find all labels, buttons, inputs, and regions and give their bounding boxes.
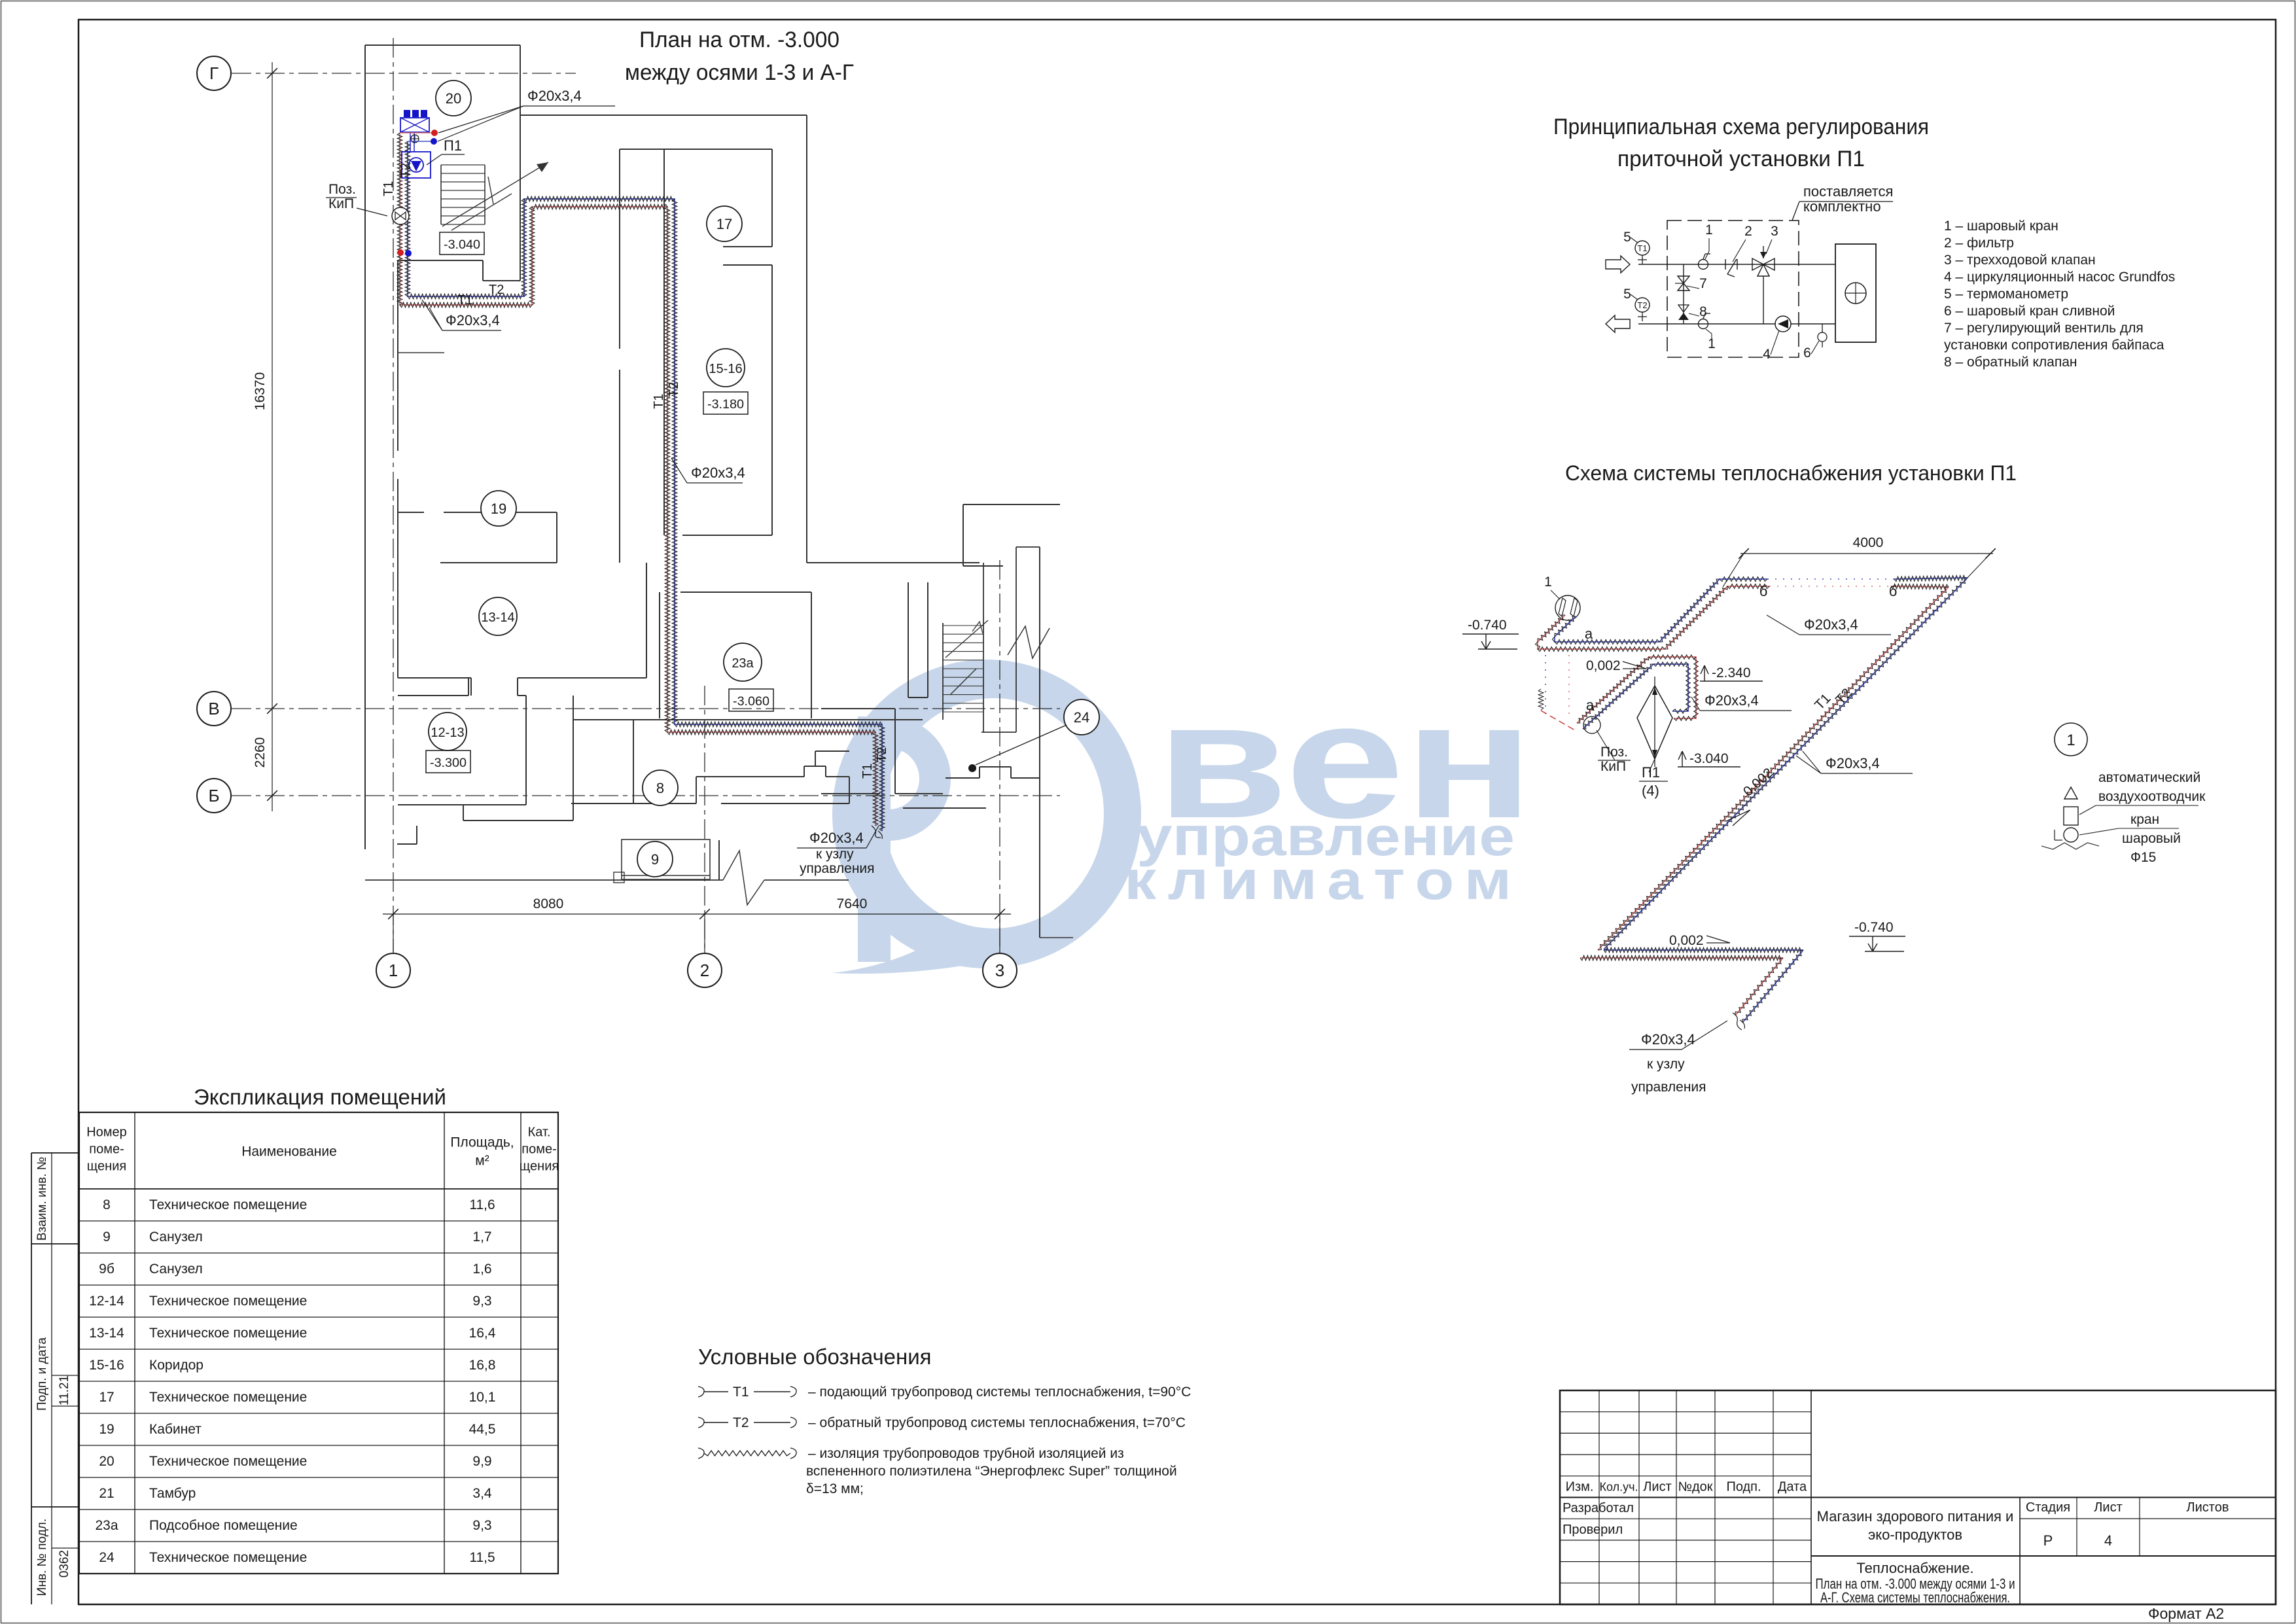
svg-text:-3.300: -3.300 (430, 756, 467, 770)
svg-text:Ф20x3,4: Ф20x3,4 (1804, 616, 1858, 633)
svg-text:Т1: Т1 (860, 764, 875, 779)
svg-text:-2.340: -2.340 (1712, 665, 1751, 680)
svg-text:Подсобное помещение: Подсобное помещение (149, 1518, 298, 1533)
svg-text:шаровый: шаровый (2122, 831, 2181, 846)
svg-text:44,5: 44,5 (469, 1422, 496, 1437)
svg-text:11.21: 11.21 (58, 1375, 71, 1405)
svg-text:В: В (208, 699, 219, 718)
svg-text:Р: Р (2043, 1532, 2053, 1549)
svg-text:Г: Г (209, 63, 219, 83)
svg-text:поставляется: поставляется (1803, 183, 1893, 200)
svg-text:0,002: 0,002 (1669, 933, 1704, 948)
svg-text:17: 17 (716, 216, 732, 232)
svg-text:23а: 23а (732, 656, 754, 671)
svg-text:вспененного полиэтилена “Энерг: вспененного полиэтилена “Энергофлекс Sup… (806, 1464, 1177, 1479)
svg-text:9,3: 9,3 (472, 1518, 491, 1533)
svg-text:Номер: Номер (86, 1125, 127, 1140)
svg-text:Санузел: Санузел (149, 1229, 203, 1244)
svg-text:Дата: Дата (1778, 1480, 1807, 1494)
svg-text:к узлу: к узлу (816, 847, 854, 862)
svg-text:9: 9 (103, 1229, 111, 1244)
svg-text:10,1: 10,1 (469, 1390, 496, 1405)
svg-text:приточной установки П1: приточной установки П1 (1617, 147, 1865, 171)
svg-text:19: 19 (491, 501, 506, 517)
svg-text:1 – шаровый кран: 1 – шаровый кран (1944, 219, 2058, 234)
svg-text:Формат А2: Формат А2 (2148, 1605, 2224, 1622)
svg-text:3: 3 (995, 961, 1004, 980)
svg-text:Техническое помещение: Техническое помещение (149, 1326, 307, 1341)
svg-text:9,9: 9,9 (472, 1454, 491, 1469)
svg-text:4: 4 (1763, 347, 1771, 362)
svg-text:Т2: Т2 (667, 382, 681, 397)
svg-text:б: б (1889, 583, 1898, 599)
svg-text:Б: Б (208, 786, 219, 805)
svg-text:3,4: 3,4 (472, 1486, 492, 1501)
svg-text:КиП: КиП (1600, 759, 1626, 774)
svg-text:Коридор: Коридор (149, 1358, 203, 1373)
svg-text:15-16: 15-16 (89, 1358, 124, 1373)
svg-text:-0.740: -0.740 (1468, 618, 1507, 633)
svg-text:а: а (1585, 626, 1593, 642)
svg-text:3 – трехходовой клапан: 3 – трехходовой клапан (1944, 253, 2096, 268)
svg-text:1,6: 1,6 (472, 1262, 491, 1277)
svg-text:2 – фильтр: 2 – фильтр (1944, 236, 2014, 251)
svg-text:Схема системы теплоснабжения у: Схема системы теплоснабжения установки П… (1565, 461, 2017, 485)
svg-text:Т1: Т1 (733, 1385, 749, 1400)
svg-text:4000: 4000 (1853, 535, 1884, 550)
svg-text:Теплоснабжение.: Теплоснабжение. (1856, 1560, 1973, 1576)
svg-text:16,8: 16,8 (469, 1358, 496, 1373)
svg-text:Проверил: Проверил (1563, 1523, 1623, 1537)
svg-text:Техническое помещение: Техническое помещение (149, 1454, 307, 1469)
svg-text:1: 1 (389, 961, 398, 980)
svg-text:Наименование: Наименование (241, 1144, 337, 1159)
svg-text:Т1: Т1 (381, 181, 396, 196)
svg-text:7: 7 (1699, 276, 1707, 291)
svg-text:9,3: 9,3 (472, 1294, 491, 1309)
svg-text:Санузел: Санузел (149, 1262, 203, 1277)
svg-text:1,7: 1,7 (472, 1229, 491, 1244)
svg-text:-3.040: -3.040 (444, 238, 480, 252)
svg-text:-3.180: -3.180 (707, 398, 744, 412)
svg-text:17: 17 (99, 1390, 114, 1405)
svg-text:24: 24 (99, 1550, 115, 1565)
svg-text:13-14: 13-14 (89, 1326, 124, 1341)
svg-text:управления: управления (800, 861, 875, 876)
svg-text:Поз.: Поз. (1600, 745, 1628, 760)
svg-text:Площадь,: Площадь, (450, 1135, 514, 1150)
svg-text:Кат.: Кат. (528, 1125, 551, 1140)
svg-text:8: 8 (656, 780, 664, 796)
svg-text:Лист: Лист (1643, 1480, 1671, 1494)
svg-text:Т2: Т2 (489, 283, 504, 297)
svg-text:поме-: поме- (521, 1142, 557, 1157)
svg-text:Ф20x3,4: Ф20x3,4 (691, 465, 745, 481)
svg-text:№док: №док (1678, 1480, 1713, 1494)
svg-text:3: 3 (1771, 224, 1778, 239)
svg-text:Изм.: Изм. (1566, 1480, 1594, 1494)
svg-text:А-Г. Схема системы теплоснабже: А-Г. Схема системы теплоснабжения. (1820, 1589, 2010, 1606)
svg-text:20: 20 (446, 90, 461, 107)
svg-text:П1: П1 (444, 137, 462, 154)
svg-text:23а: 23а (95, 1518, 118, 1533)
svg-text:16,4: 16,4 (469, 1326, 496, 1341)
svg-text:2260: 2260 (253, 737, 268, 768)
svg-text:Ф20x3,4: Ф20x3,4 (446, 312, 500, 328)
svg-text:Принципиальная схема регулиров: Принципиальная схема регулирования (1553, 115, 1929, 139)
svg-text:4: 4 (2104, 1532, 2112, 1549)
svg-text:Ф20x3,4: Ф20x3,4 (1826, 755, 1880, 771)
svg-text:Тамбур: Тамбур (149, 1486, 196, 1501)
svg-text:19: 19 (99, 1422, 114, 1437)
svg-text:Техническое помещение: Техническое помещение (149, 1550, 307, 1565)
svg-text:8: 8 (103, 1197, 111, 1212)
svg-text:0362: 0362 (58, 1550, 71, 1578)
svg-text:Ф20x3,4: Ф20x3,4 (1641, 1031, 1695, 1048)
svg-text:5: 5 (1623, 230, 1631, 245)
svg-text:Условные обозначения: Условные обозначения (698, 1345, 932, 1369)
svg-text:Ф20x3,4: Ф20x3,4 (809, 830, 864, 846)
svg-text:комплектно: комплектно (1803, 198, 1881, 215)
svg-text:20: 20 (99, 1454, 114, 1469)
svg-text:Ф20x3,4: Ф20x3,4 (1704, 692, 1759, 709)
svg-text:между осями 1-3 и А-Г: между осями 1-3 и А-Г (625, 60, 854, 85)
svg-text:11,5: 11,5 (469, 1550, 495, 1565)
svg-text:Кабинет: Кабинет (149, 1422, 202, 1437)
svg-text:13-14: 13-14 (481, 610, 514, 625)
svg-text:Техническое помещение: Техническое помещение (149, 1294, 307, 1309)
svg-text:24: 24 (1074, 709, 1089, 726)
svg-text:Т1: Т1 (652, 394, 666, 409)
svg-text:Техническое помещение: Техническое помещение (149, 1390, 307, 1405)
svg-text:поме-: поме- (89, 1142, 124, 1157)
svg-text:Ф15: Ф15 (2130, 850, 2156, 865)
svg-text:Магазин здорового питания и: Магазин здорового питания и (1817, 1508, 2014, 1525)
svg-text:– обратный трубопровод системы: – обратный трубопровод системы теплоснаб… (808, 1415, 1186, 1430)
svg-text:автоматический: автоматический (2098, 770, 2200, 785)
svg-text:Подп.: Подп. (1726, 1480, 1761, 1494)
svg-text:8080: 8080 (533, 896, 564, 911)
svg-text:8: 8 (1699, 304, 1707, 319)
svg-text:1: 1 (2066, 732, 2075, 749)
svg-text:Разработал: Разработал (1563, 1501, 1634, 1515)
svg-text:7640: 7640 (837, 896, 868, 911)
svg-text:16370: 16370 (253, 372, 268, 410)
svg-text:Лист: Лист (2094, 1500, 2122, 1515)
svg-text:климатом: климатом (1124, 850, 1523, 911)
svg-text:Поз.: Поз. (328, 182, 356, 197)
svg-text:21: 21 (99, 1486, 114, 1501)
svg-text:Т2: Т2 (1637, 300, 1647, 310)
svg-text:– изоляция трубопроводов трубн: – изоляция трубопроводов трубной изоляци… (808, 1446, 1124, 1461)
svg-text:управления: управления (1631, 1080, 1706, 1095)
svg-text:установки сопротивления байпас: установки сопротивления байпаса (1944, 338, 2164, 353)
svg-text:4 – циркуляционный насос Grund: 4 – циркуляционный насос Grundfos (1944, 270, 2175, 285)
svg-text:воздухоотводчик: воздухоотводчик (2098, 789, 2206, 804)
svg-text:8 – обратный клапан: 8 – обратный клапан (1944, 355, 2077, 370)
svg-text:-0.740: -0.740 (1854, 920, 1894, 935)
svg-text:7 – регулирующий вентиль для: 7 – регулирующий вентиль для (1944, 321, 2144, 336)
svg-text:6: 6 (1803, 345, 1811, 361)
svg-text:0,002: 0,002 (1586, 658, 1621, 673)
svg-text:Ф20x3,4: Ф20x3,4 (527, 88, 582, 104)
svg-text:9б: 9б (99, 1262, 115, 1277)
svg-text:2: 2 (1744, 224, 1752, 239)
svg-text:1: 1 (1705, 222, 1713, 238)
svg-text:Взаим. инв. №: Взаим. инв. № (35, 1157, 49, 1241)
svg-text:Листов: Листов (2187, 1500, 2229, 1515)
svg-text:эко-продуктов: эко-продуктов (1868, 1527, 1962, 1543)
svg-text:-3.040: -3.040 (1689, 751, 1729, 766)
svg-text:9: 9 (651, 851, 659, 868)
svg-text:5 – термоманометр: 5 – термоманометр (1944, 287, 2068, 302)
svg-text:П1: П1 (1642, 764, 1660, 781)
svg-text:15-16: 15-16 (709, 362, 742, 376)
svg-text:(4): (4) (1642, 783, 1659, 799)
svg-text:5: 5 (1623, 287, 1631, 302)
svg-text:щения: щения (520, 1159, 559, 1174)
svg-text:12-13: 12-13 (431, 726, 464, 740)
svg-text:– подающий трубопровод системы: – подающий трубопровод системы теплоснаб… (808, 1385, 1191, 1400)
svg-text:План на отм. -3.000: План на отм. -3.000 (639, 27, 839, 52)
svg-text:Т1: Т1 (1637, 243, 1647, 253)
svg-text:δ=13 мм;: δ=13 мм; (806, 1481, 864, 1496)
svg-text:к узлу: к узлу (1647, 1057, 1685, 1072)
svg-text:11,6: 11,6 (469, 1197, 495, 1212)
svg-text:б: б (1759, 583, 1768, 599)
svg-text:Экспликация помещений: Экспликация помещений (194, 1085, 446, 1109)
svg-text:Т2: Т2 (398, 163, 413, 178)
svg-text:кран: кран (2130, 812, 2159, 827)
svg-text:Инв. № подл.: Инв. № подл. (35, 1519, 49, 1596)
svg-text:Стадия: Стадия (2026, 1500, 2070, 1515)
svg-text:Т1: Т1 (457, 293, 472, 308)
svg-text:щения: щения (87, 1159, 126, 1174)
svg-text:1: 1 (1544, 574, 1552, 590)
svg-text:м²: м² (475, 1154, 489, 1169)
svg-text:-3.060: -3.060 (733, 695, 769, 709)
svg-text:Техническое помещение: Техническое помещение (149, 1197, 307, 1212)
svg-text:Подп. и дата: Подп. и дата (35, 1337, 49, 1411)
svg-text:12-14: 12-14 (89, 1294, 124, 1309)
svg-text:2: 2 (700, 961, 709, 980)
svg-text:Т2: Т2 (875, 747, 889, 762)
svg-text:6 – шаровый кран сливной: 6 – шаровый кран сливной (1944, 304, 2115, 319)
svg-text:Т2: Т2 (733, 1415, 749, 1430)
svg-text:а: а (1586, 697, 1595, 713)
svg-text:КиП: КиП (328, 196, 354, 211)
svg-text:Кол.уч.: Кол.уч. (1600, 1481, 1638, 1494)
